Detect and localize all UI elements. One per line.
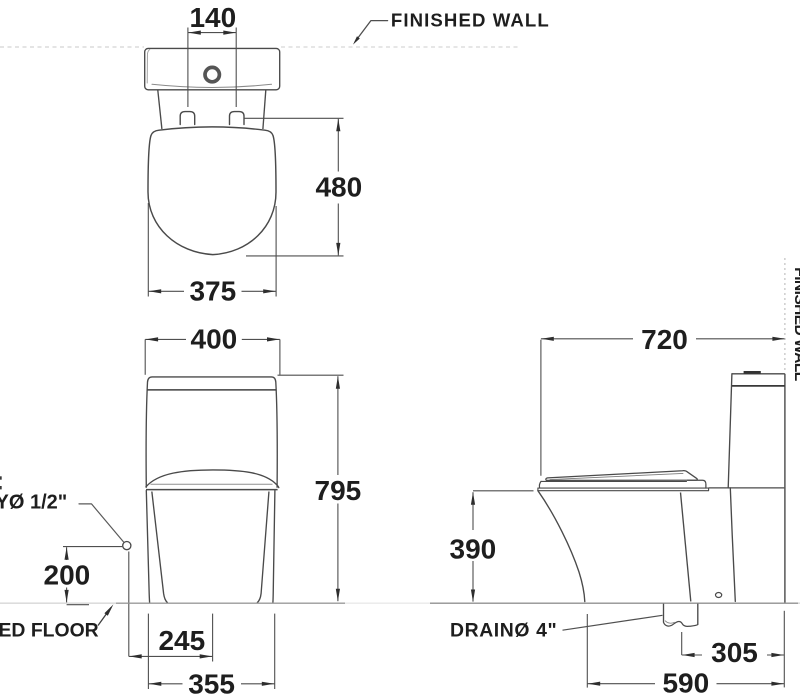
svg-text:FINISHED WALL: FINISHED WALL	[391, 9, 550, 30]
svg-text:200: 200	[44, 559, 91, 590]
svg-text:590: 590	[662, 667, 709, 698]
svg-text:ED FLOOR: ED FLOOR	[0, 619, 99, 641]
svg-text:480: 480	[315, 172, 362, 203]
svg-text:355: 355	[188, 669, 235, 699]
svg-text:305: 305	[711, 637, 758, 668]
svg-text:720: 720	[641, 324, 688, 355]
svg-text:FINISHED WALL: FINISHED WALL	[791, 267, 800, 380]
svg-text:245: 245	[158, 625, 205, 656]
svg-text:YØ 1/2": YØ 1/2"	[0, 492, 67, 514]
svg-text:795: 795	[315, 475, 362, 506]
svg-text:DRAINØ 4": DRAINØ 4"	[450, 619, 557, 641]
svg-text:375: 375	[189, 276, 236, 307]
svg-text:400: 400	[191, 323, 238, 354]
svg-text:390: 390	[450, 533, 497, 564]
svg-text:140: 140	[189, 2, 236, 33]
